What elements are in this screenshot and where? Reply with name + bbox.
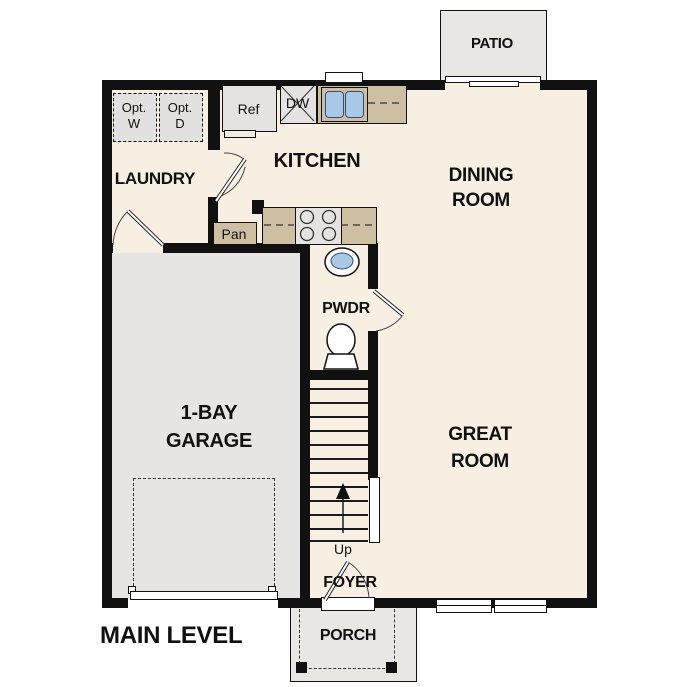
foyer-label: FOYER (315, 574, 385, 592)
optional-dryer-label: Opt.D (159, 100, 201, 132)
optional-washer-label: Opt.W (113, 100, 155, 132)
powder-sink-icon (325, 248, 359, 276)
dishwasher-label: DW (280, 95, 315, 111)
dining-room-label: DININGROOM (421, 163, 541, 213)
stairs-up-label: Up (328, 541, 358, 557)
pantry-label: Pan (213, 226, 255, 242)
range-burners-icon (301, 211, 336, 241)
laundry-label: LAUNDRY (105, 169, 205, 189)
floor-plan: LAUNDRY KITCHEN DININGROOM GREATROOM 1-B… (0, 0, 687, 687)
toilet-icon (324, 324, 358, 369)
kitchen-corner-door (216, 153, 245, 201)
patio-label: PATIO (442, 35, 542, 52)
refrigerator-label: Ref (222, 101, 275, 117)
powder-door (374, 291, 403, 331)
laundry-door (113, 211, 163, 245)
kitchen-label: KITCHEN (257, 150, 377, 173)
stair-up-arrow-icon (336, 483, 350, 533)
powder-room-label: PWDR (316, 300, 376, 318)
garage-label: 1-BAYGARAGE (139, 399, 279, 455)
great-room-label: GREATROOM (420, 421, 540, 475)
plan-title: MAIN LEVEL (100, 622, 320, 650)
